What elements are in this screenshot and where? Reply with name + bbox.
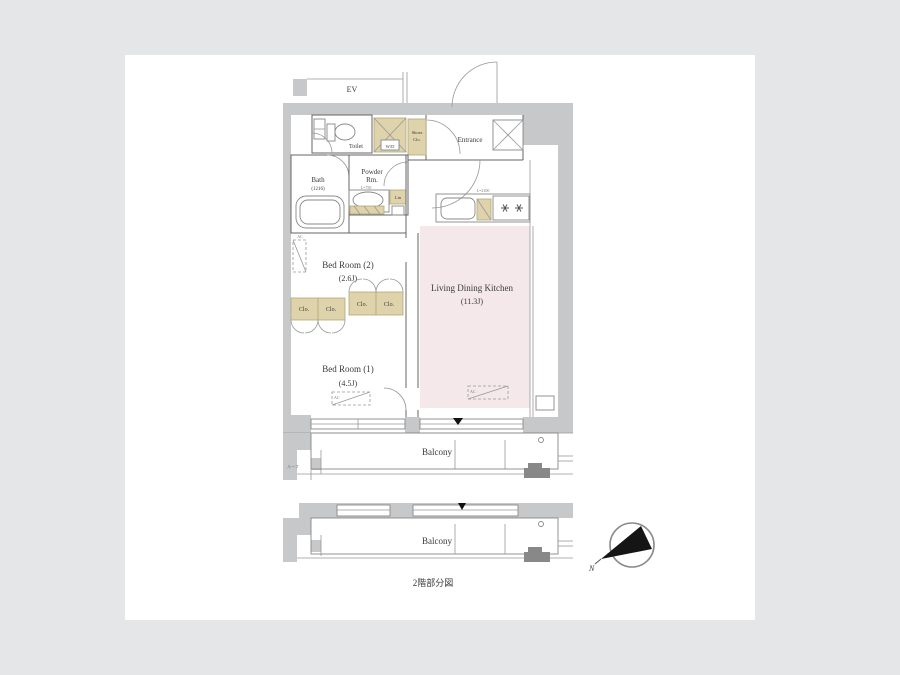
north-arrow-icon: [601, 526, 652, 559]
closet-door-arc: [376, 279, 389, 292]
bathtub-icon: [296, 196, 344, 228]
north-label: N: [588, 564, 595, 573]
vanity-dim-label: L=750: [361, 185, 372, 190]
washer-space: W/D: [374, 118, 406, 152]
bed2-label: Bed Room (2): [322, 260, 374, 270]
burner-icon: [501, 205, 523, 212]
ev-corridor: EV: [293, 72, 407, 103]
powder-label-2: Rm.: [366, 176, 378, 184]
washer-label: W/D: [386, 144, 395, 149]
kitchen-dim-label: L=2100: [477, 188, 490, 193]
bath-label: Bath: [311, 176, 325, 184]
shoes-closet: Shoes Clo.: [408, 119, 426, 155]
genkan-door-arc: [426, 120, 460, 154]
floor-note-label: 2階部分図: [413, 577, 454, 588]
room-powder: Powder Rm. L=750 Lin: [349, 155, 408, 215]
linen-label: Lin: [395, 195, 402, 200]
pipe-space-icon: [392, 206, 404, 215]
balcony-lower-label: Balcony: [422, 536, 452, 546]
bath-door-arc: [327, 155, 349, 177]
shoes-label-1: Shoes: [412, 130, 423, 135]
toilet-bowl-icon: [335, 124, 355, 140]
ldk-size-label: (11.3J): [461, 297, 483, 306]
ldk-label: Living Dining Kitchen: [431, 283, 513, 293]
drain-box-icon-2: [524, 552, 550, 562]
stove-icon: [493, 196, 529, 220]
hose-bib-icon-2: [539, 522, 544, 527]
powder-label-1: Powder: [361, 168, 383, 176]
floor-plan-page: EV Entrance: [0, 0, 900, 675]
closet-door-arc: [318, 320, 331, 333]
closet-label-2: Clo.: [384, 302, 395, 308]
room-bath: Bath (1216): [291, 155, 349, 233]
compass: N: [588, 523, 654, 573]
closet-door-arc: [390, 279, 403, 292]
room-bed1: Bed Room (1) (4.5J) AC: [322, 364, 374, 405]
closet-label-1: Clo.: [357, 302, 368, 308]
closet-door-arc: [291, 320, 304, 333]
room-bed2: AC Bed Room (2) (2.6J): [291, 233, 406, 283]
kitchen-sink-icon: [441, 198, 475, 219]
powder-door-arc: [384, 162, 408, 186]
balcony-upper: ルーフ Balcony: [283, 433, 573, 480]
entrance-door-arc: [452, 62, 497, 107]
room-toilet: Toilet: [312, 115, 372, 153]
balcony-upper-label: Balcony: [422, 447, 452, 457]
bed1-door-arc: [384, 388, 406, 410]
room-ldk: Living Dining Kitchen (11.3J) AC: [420, 160, 554, 417]
drain-box-icon: [524, 468, 550, 478]
bath-size-label: (1216): [311, 187, 325, 192]
bed1-size-label: (4.5J): [339, 379, 358, 388]
entrance-label: Entrance: [458, 136, 483, 144]
closet-door-arc: [332, 320, 345, 333]
closet-label-3: Clo.: [299, 307, 310, 313]
shoes-label-2: Clo.: [413, 137, 421, 142]
lower-floor-section: Balcony 2階部分図: [283, 503, 573, 588]
toilet-label: Toilet: [349, 144, 363, 150]
floor-plan-drawing: EV Entrance: [0, 0, 900, 675]
ac-label-bed1: AC: [334, 395, 340, 400]
toilet-tank-icon: [327, 124, 335, 141]
hose-bib-icon: [539, 438, 544, 443]
bed1-label: Bed Room (1): [322, 364, 374, 374]
closet-label-4: Clo.: [326, 307, 337, 313]
ac-label-bed2: AC: [297, 234, 303, 239]
ldk-door-arc: [432, 160, 480, 208]
ac-label-ldk: AC: [470, 389, 476, 394]
roof-note: ルーフ: [287, 464, 299, 469]
ps-box-icon: [536, 396, 554, 410]
closet-door-arc: [363, 279, 376, 292]
closet-door-arc: [305, 320, 318, 333]
ev-label: EV: [347, 85, 358, 94]
closets: Clo. Clo. Clo. Clo.: [291, 279, 403, 333]
